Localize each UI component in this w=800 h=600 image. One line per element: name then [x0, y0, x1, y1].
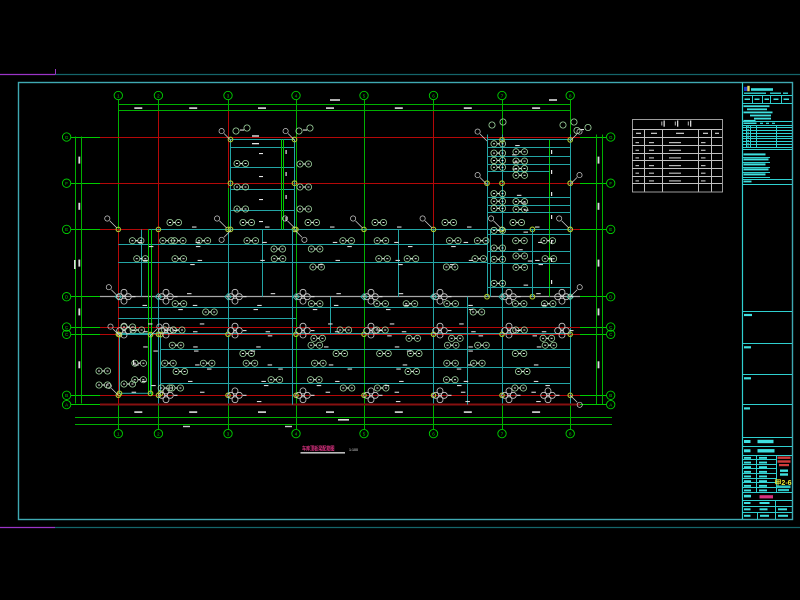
svg-text:B: B — [65, 393, 68, 398]
svg-text:1:100: 1:100 — [349, 448, 358, 452]
svg-text:E: E — [609, 227, 612, 232]
svg-text:E: E — [65, 227, 68, 232]
svg-text:F: F — [65, 181, 68, 186]
svg-text:F: F — [609, 181, 612, 186]
svg-text:A: A — [609, 402, 612, 407]
svg-text:G: G — [609, 135, 613, 140]
svg-text:B: B — [609, 393, 612, 398]
svg-text:A: A — [65, 402, 68, 407]
svg-text:G: G — [65, 135, 69, 140]
svg-text:车库顶板梁配筋图: 车库顶板梁配筋图 — [302, 444, 335, 452]
